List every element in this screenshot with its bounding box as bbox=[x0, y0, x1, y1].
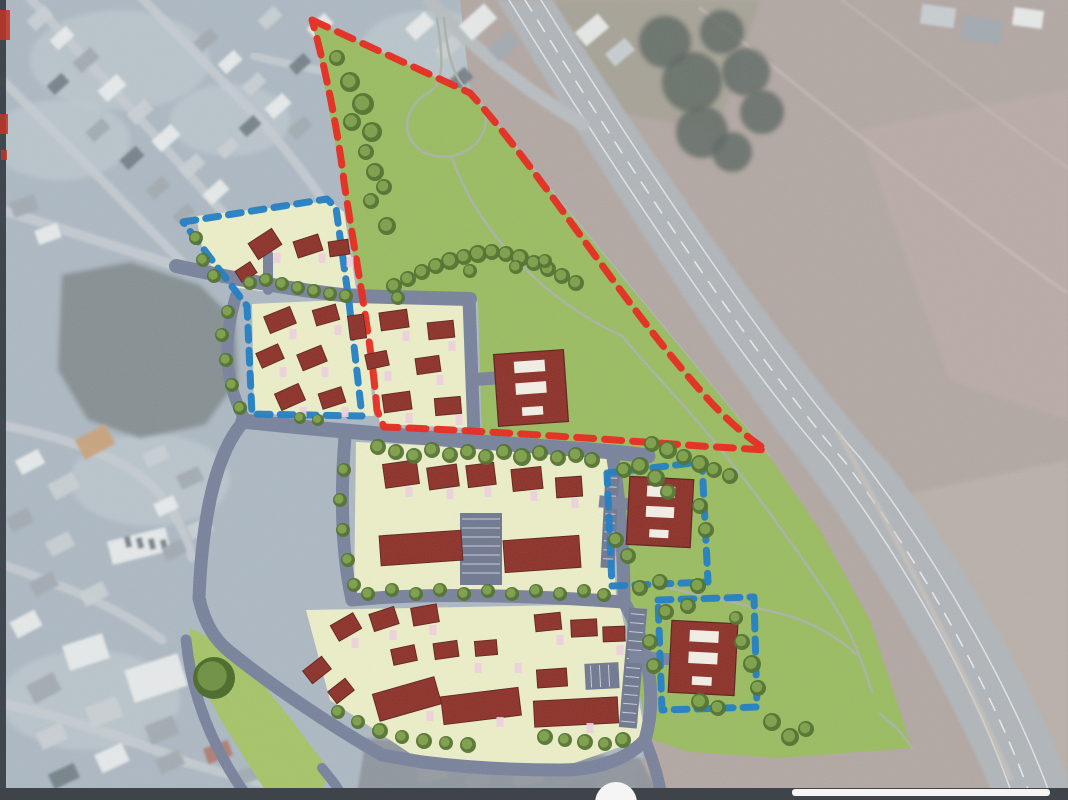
scan-red-mark bbox=[1, 150, 7, 160]
masterplan-screenshot bbox=[0, 0, 1068, 800]
scan-red-mark bbox=[0, 114, 8, 134]
scan-red-mark bbox=[0, 10, 10, 40]
site-plan-map bbox=[0, 0, 1068, 800]
white-strip bbox=[792, 789, 1050, 796]
scan-grain bbox=[0, 0, 1068, 800]
scan-grain-overlay bbox=[0, 0, 1068, 800]
